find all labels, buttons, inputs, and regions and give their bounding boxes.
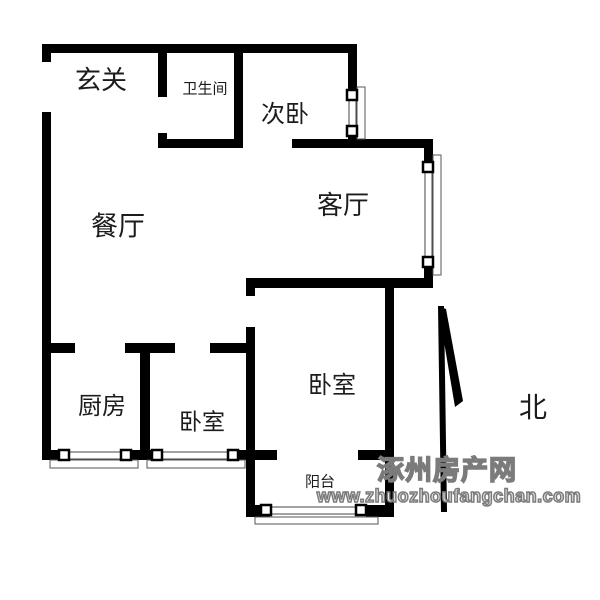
wall-bath-right	[234, 53, 243, 148]
room-label-entry: 玄关	[75, 68, 127, 94]
wall-left-upper	[42, 44, 51, 62]
wall-bottom-seg-1	[42, 450, 60, 460]
window-living-room	[423, 155, 441, 275]
wall-entry-bath-divider	[158, 53, 167, 97]
wall-main-bedroom-left	[246, 327, 255, 517]
room-label-bathroom: 卫生间	[182, 83, 227, 98]
room-label-bedroom-second: 次卧	[261, 103, 309, 127]
wall-bottom-seg-3	[238, 450, 277, 460]
room-label-bedroom-small: 卧室	[179, 411, 225, 434]
wall-small-bedroom-stub	[210, 343, 255, 353]
wall-living-bottom-stub	[246, 278, 255, 296]
walls	[42, 44, 433, 517]
window-kitchen	[50, 450, 138, 468]
wall-kitchen-divider	[140, 343, 150, 460]
wall-kitchen-stub-left	[42, 343, 75, 353]
wall-living-top	[292, 139, 433, 148]
watermark-site-name: 涿州房产网	[377, 458, 517, 485]
window-second-bedroom	[347, 87, 365, 139]
floorplan-canvas: 玄关 卫生间 次卧 餐厅 客厅 厨房 卧室 卧室 阳台 北 涿州房产网 www.…	[0, 0, 600, 600]
room-label-living-room: 客厅	[317, 193, 369, 219]
room-label-bedroom-main: 卧室	[308, 374, 356, 398]
north-label: 北	[519, 395, 547, 423]
wall-top	[42, 44, 357, 53]
wall-balcony-corner-right	[366, 505, 394, 517]
room-label-dining-room: 餐厅	[91, 214, 145, 241]
wall-left-main	[42, 112, 51, 460]
wall-second-bedroom-right-upper	[348, 53, 357, 91]
window-balcony	[255, 505, 378, 524]
window-small-bedroom	[147, 450, 245, 468]
watermark-site-url: www.zhuozhoufangchan.com	[317, 487, 581, 505]
wall-bottom-seg-2	[130, 450, 154, 460]
room-label-kitchen: 厨房	[78, 395, 126, 419]
wall-bath-bottom	[158, 139, 243, 148]
wall-living-bottom	[246, 278, 433, 288]
